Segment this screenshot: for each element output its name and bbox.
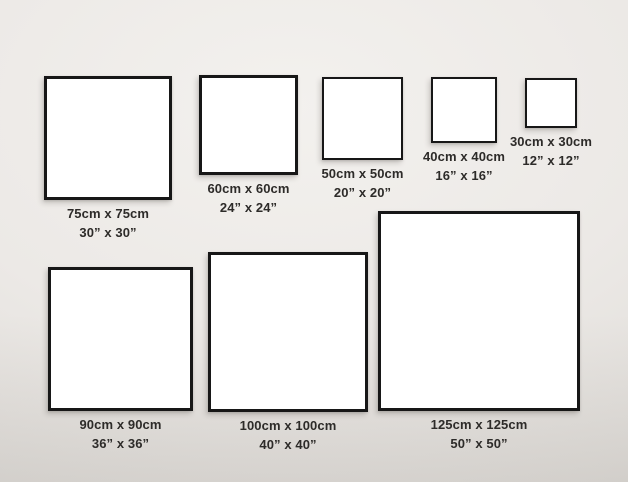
frame-label-in: 24” x 24” bbox=[207, 198, 289, 217]
frame-60x60-label: 60cm x 60cm 24” x 24” bbox=[207, 179, 289, 217]
frame-125x125: 125cm x 125cm 50” x 50” bbox=[378, 211, 580, 411]
frame-75x75-canvas bbox=[44, 76, 172, 200]
frame-60x60: 60cm x 60cm 24” x 24” bbox=[199, 75, 298, 175]
frame-75x75-label: 75cm x 75cm 30” x 30” bbox=[67, 204, 149, 242]
frame-label-in: 16” x 16” bbox=[423, 166, 505, 185]
frame-label-in: 20” x 20” bbox=[321, 183, 403, 202]
frame-50x50-canvas bbox=[322, 77, 403, 160]
frame-100x100-label: 100cm x 100cm 40” x 40” bbox=[240, 416, 337, 454]
frame-75x75: 75cm x 75cm 30” x 30” bbox=[44, 76, 172, 200]
frame-label-in: 30” x 30” bbox=[67, 223, 149, 242]
frame-label-cm: 60cm x 60cm bbox=[207, 179, 289, 198]
frame-125x125-canvas bbox=[378, 211, 580, 411]
frame-50x50-label: 50cm x 50cm 20” x 20” bbox=[321, 164, 403, 202]
frame-label-in: 50” x 50” bbox=[431, 434, 528, 453]
frame-30x30-canvas bbox=[525, 78, 577, 128]
frame-40x40-canvas bbox=[431, 77, 497, 143]
frame-label-in: 36” x 36” bbox=[79, 434, 161, 453]
frame-40x40: 40cm x 40cm 16” x 16” bbox=[431, 77, 497, 143]
frame-label-cm: 50cm x 50cm bbox=[321, 164, 403, 183]
frame-90x90: 90cm x 90cm 36” x 36” bbox=[48, 267, 193, 411]
frame-60x60-canvas bbox=[199, 75, 298, 175]
frame-30x30-label: 30cm x 30cm 12” x 12” bbox=[510, 132, 592, 170]
frame-label-cm: 125cm x 125cm bbox=[431, 415, 528, 434]
frame-100x100-canvas bbox=[208, 252, 368, 412]
frame-label-in: 40” x 40” bbox=[240, 435, 337, 454]
frame-50x50: 50cm x 50cm 20” x 20” bbox=[322, 77, 403, 160]
frame-90x90-canvas bbox=[48, 267, 193, 411]
size-comparison-wall: 75cm x 75cm 30” x 30” 60cm x 60cm 24” x … bbox=[0, 0, 628, 482]
frame-125x125-label: 125cm x 125cm 50” x 50” bbox=[431, 415, 528, 453]
frame-label-cm: 75cm x 75cm bbox=[67, 204, 149, 223]
frame-30x30: 30cm x 30cm 12” x 12” bbox=[525, 78, 577, 128]
frame-100x100: 100cm x 100cm 40” x 40” bbox=[208, 252, 368, 412]
frame-label-cm: 40cm x 40cm bbox=[423, 147, 505, 166]
frame-label-cm: 100cm x 100cm bbox=[240, 416, 337, 435]
frame-label-cm: 30cm x 30cm bbox=[510, 132, 592, 151]
frame-label-cm: 90cm x 90cm bbox=[79, 415, 161, 434]
frame-40x40-label: 40cm x 40cm 16” x 16” bbox=[423, 147, 505, 185]
frame-90x90-label: 90cm x 90cm 36” x 36” bbox=[79, 415, 161, 453]
frame-label-in: 12” x 12” bbox=[510, 151, 592, 170]
